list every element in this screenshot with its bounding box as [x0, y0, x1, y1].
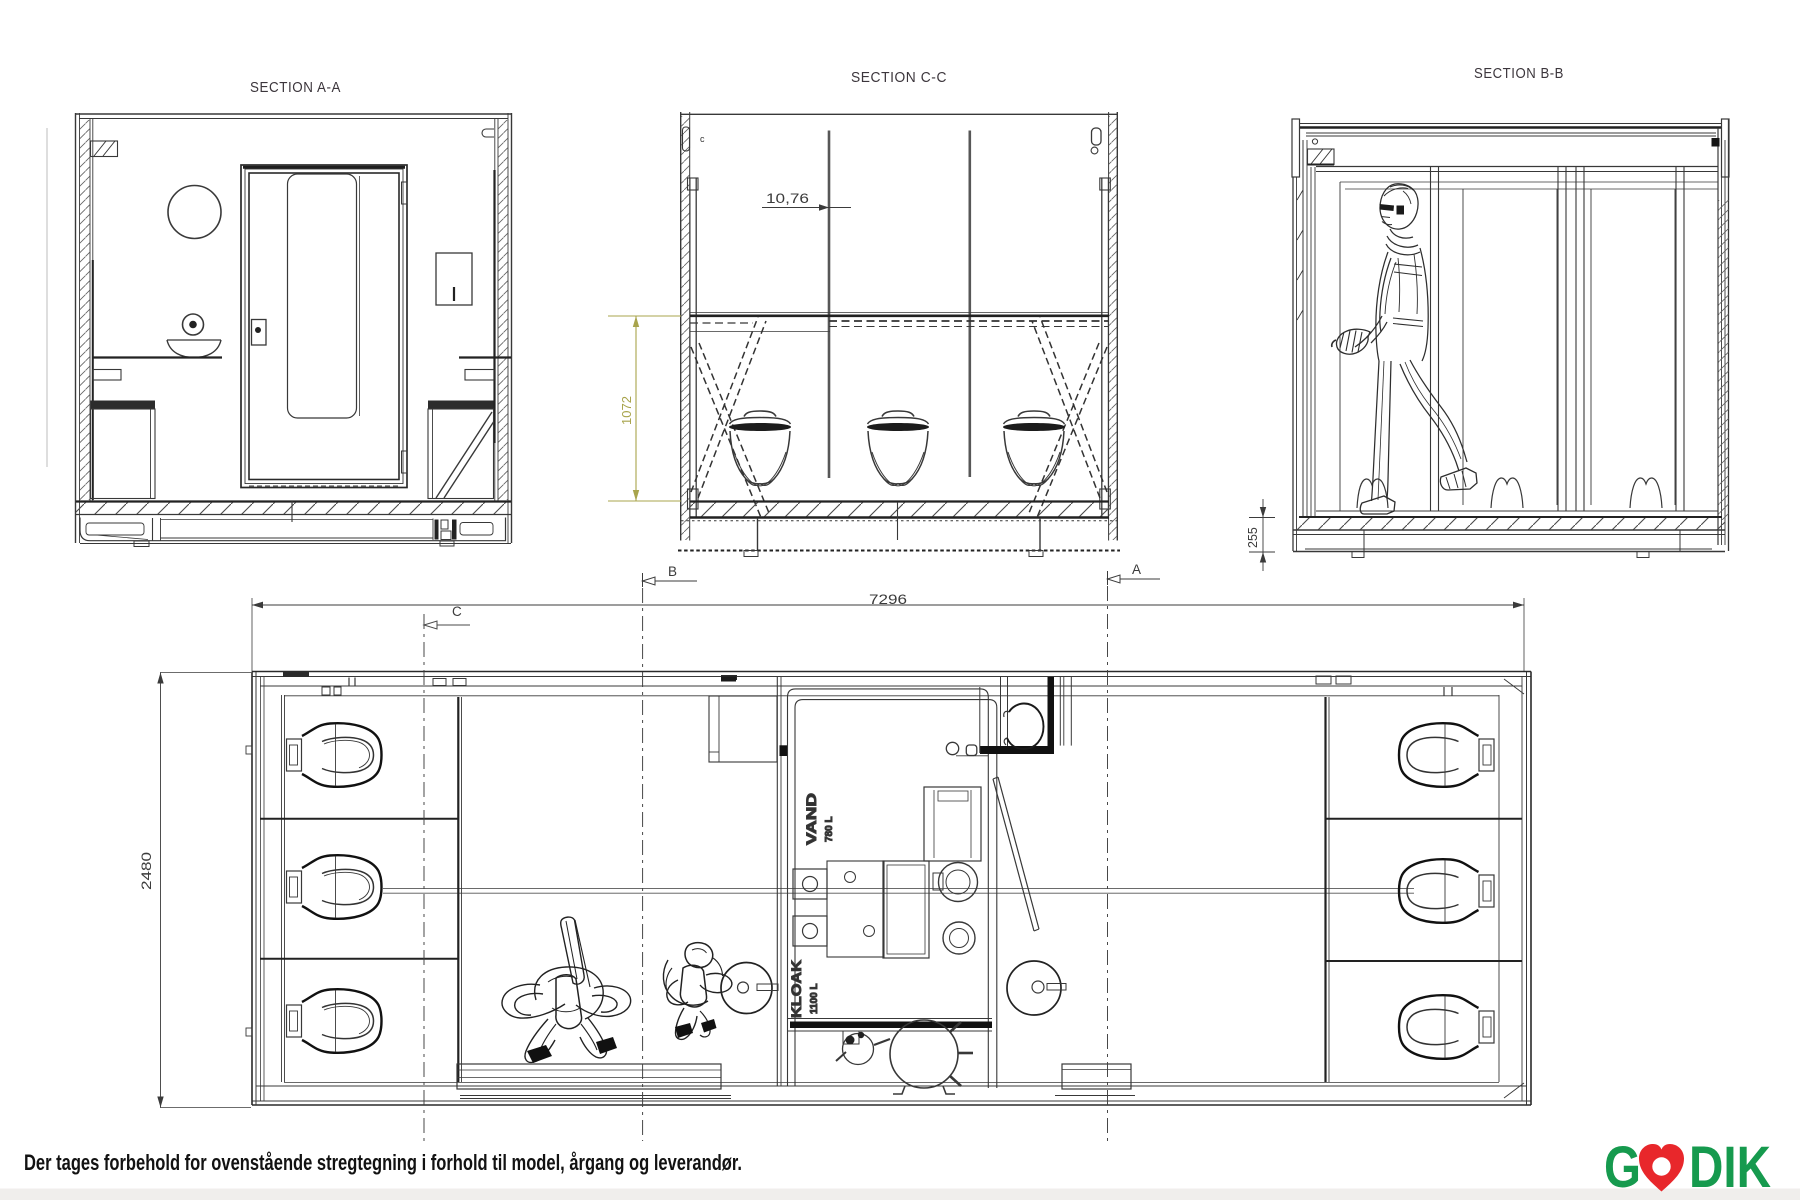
svg-text:SECTION C-C: SECTION C-C	[851, 70, 947, 86]
svg-text:DIK: DIK	[1689, 1135, 1771, 1200]
svg-text:SECTION B-B: SECTION B-B	[1474, 66, 1564, 82]
svg-text:2480: 2480	[139, 852, 154, 890]
svg-text:G: G	[1604, 1135, 1641, 1200]
svg-text:B: B	[668, 564, 677, 579]
svg-text:c: c	[700, 134, 705, 144]
svg-text:10,76: 10,76	[766, 191, 809, 206]
svg-text:255: 255	[1246, 527, 1260, 548]
svg-text:780 L: 780 L	[824, 816, 835, 842]
svg-text:A: A	[1132, 562, 1141, 577]
svg-text:1072: 1072	[619, 396, 634, 425]
svg-text:1100 L: 1100 L	[809, 983, 820, 1014]
svg-text:VAND: VAND	[803, 793, 819, 845]
svg-text:SECTION A-A: SECTION A-A	[250, 80, 341, 96]
svg-text:KLOAK: KLOAK	[788, 960, 804, 1018]
svg-text:C: C	[452, 604, 462, 619]
svg-text:Der tages forbehold for ovenst: Der tages forbehold for ovenstående stre…	[24, 1150, 742, 1175]
svg-text:7296: 7296	[869, 592, 907, 607]
